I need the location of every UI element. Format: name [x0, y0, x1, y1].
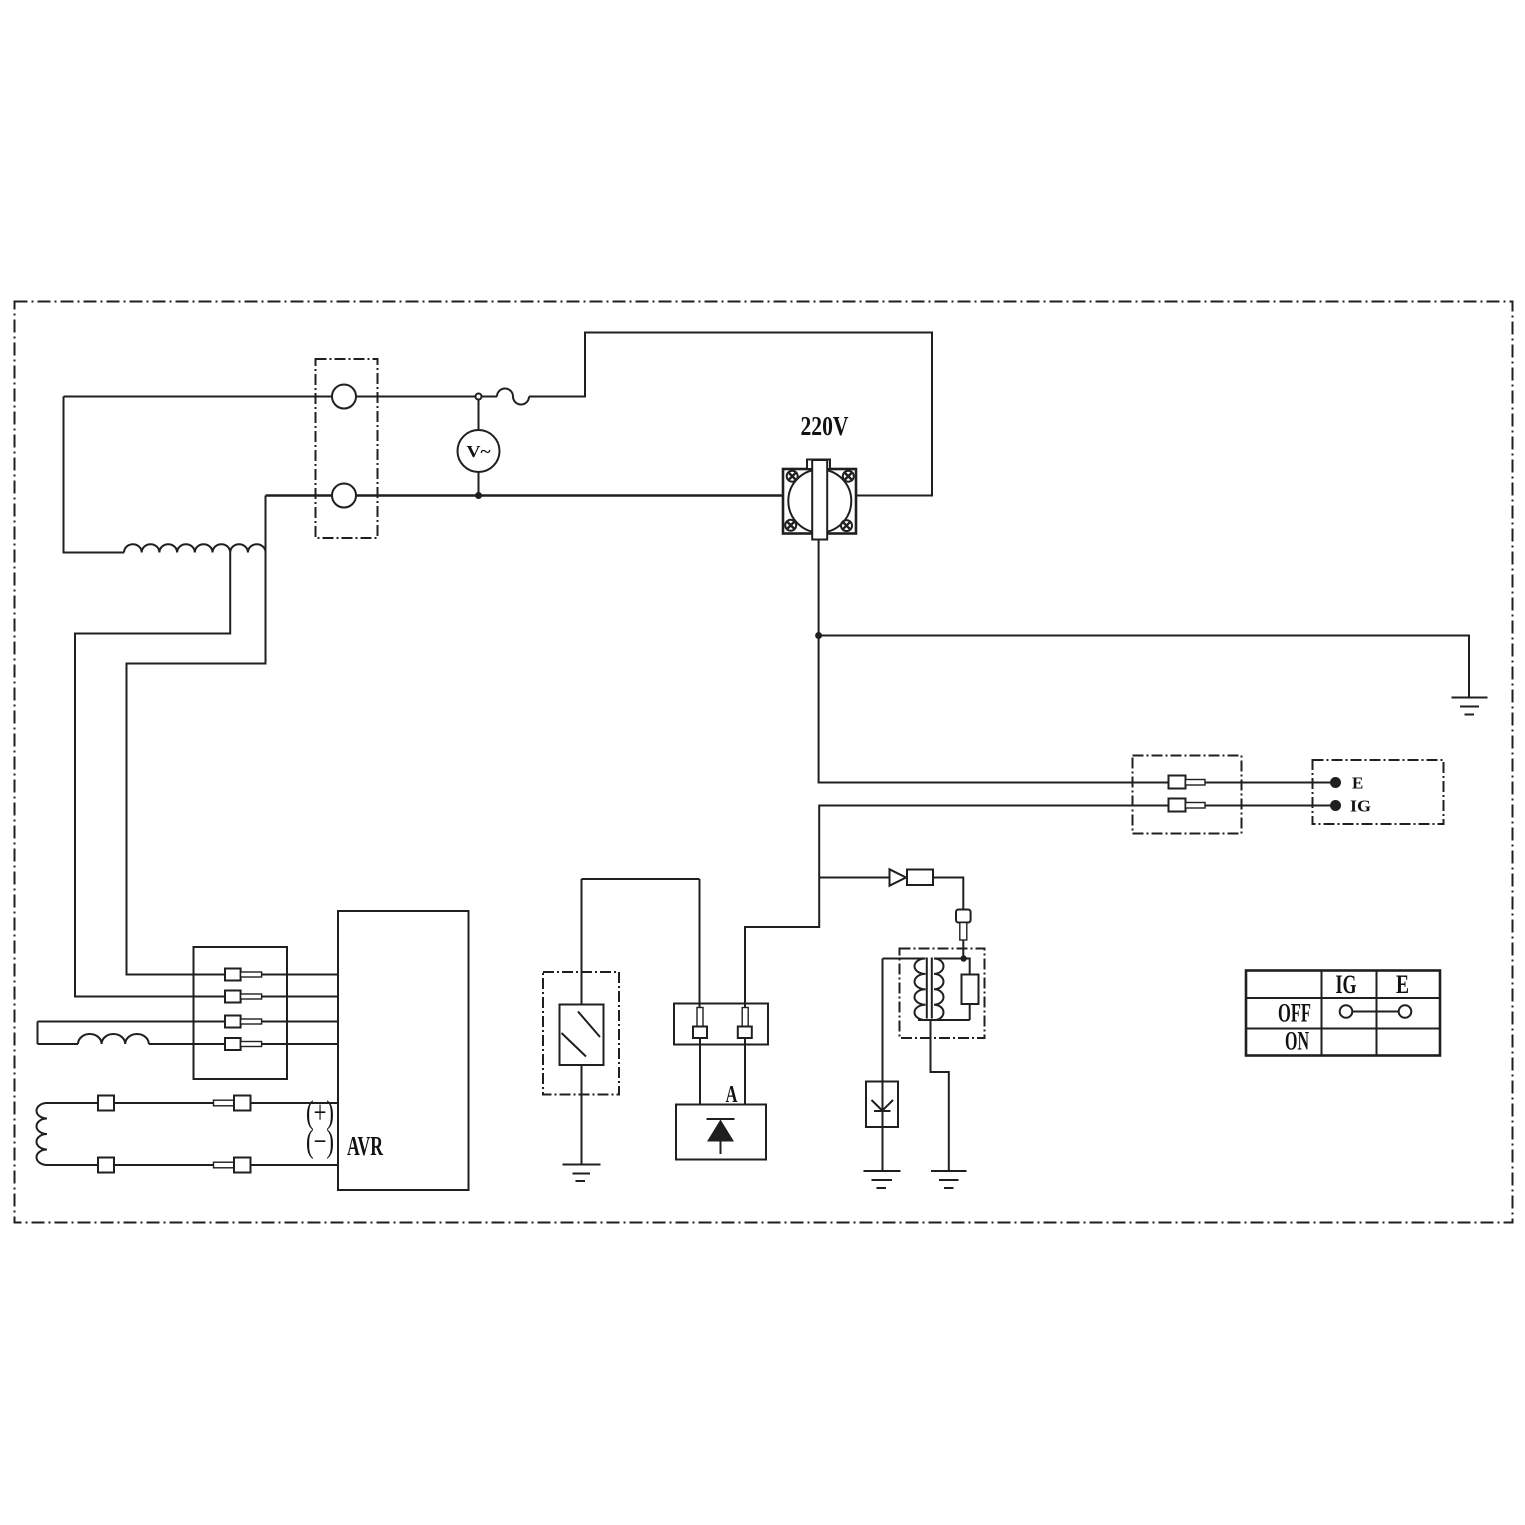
svg-text:IG: IG: [1350, 797, 1371, 816]
svg-text:OFF: OFF: [1278, 999, 1311, 1028]
svg-text:IG: IG: [1336, 970, 1357, 999]
svg-text:V~: V~: [467, 442, 491, 461]
svg-text:220V: 220V: [801, 411, 849, 441]
svg-text:E: E: [1352, 774, 1363, 793]
svg-text:AVR: AVR: [347, 1131, 383, 1161]
svg-text:E: E: [1396, 970, 1409, 999]
svg-text:ON: ON: [1285, 1027, 1309, 1056]
svg-text:(−): (−): [306, 1124, 334, 1160]
